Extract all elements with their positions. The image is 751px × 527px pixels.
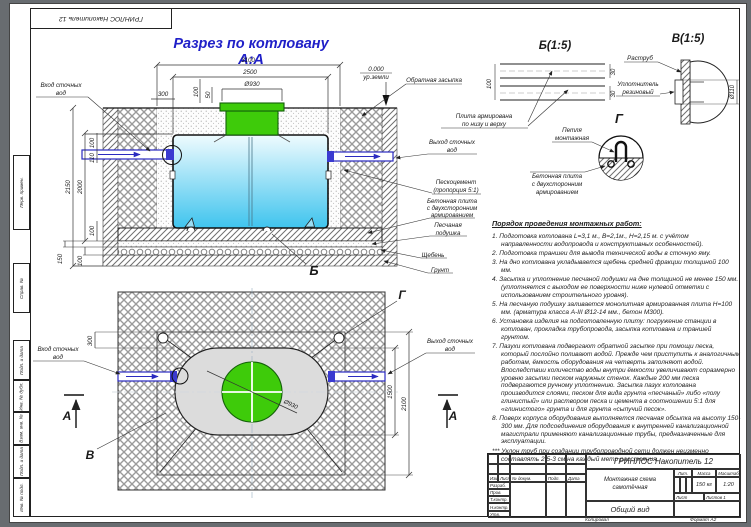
- dim-slab-h: 100: [89, 225, 96, 236]
- tb-cell: [510, 482, 546, 518]
- title-block: Изм. Лист № докум. Подп. Дата Разраб. Пр…: [487, 453, 740, 517]
- detail-b-label: Плита армирована: [456, 113, 513, 120]
- tb-cell: [566, 454, 586, 464]
- dim-cushion-h: 150: [57, 253, 64, 264]
- dim-depth-total: 2150: [65, 180, 72, 195]
- sand-cushion: [118, 241, 382, 247]
- detail-g-title: Г: [615, 111, 624, 126]
- cushion-label: Песчаная: [434, 222, 462, 229]
- concrete-slab: [118, 228, 382, 241]
- section-marker-b: Б: [309, 263, 318, 278]
- tb-cell: [498, 454, 510, 464]
- sand-right: [328, 135, 340, 228]
- dim-offset: 300: [158, 91, 169, 98]
- tb-row-nkontr: Н.контр.: [488, 503, 510, 511]
- tank-lid: [220, 103, 284, 111]
- detail-v-seal-label: Уплотнитель: [616, 81, 658, 88]
- detail-b-title: Б(1:5): [539, 40, 572, 52]
- tb-cell: [510, 454, 546, 464]
- tb-scheme-name: Монтажная схема самотёчная: [586, 469, 674, 501]
- detail-b: Б(1:5) 100 30 30 Плита армирована по низ…: [441, 40, 617, 128]
- dim-rubble-h: 100: [77, 255, 84, 266]
- tb-cell: [498, 464, 510, 474]
- backfill-label: Обратная засыпка: [406, 77, 462, 84]
- plan-dim-pit-width: 2100: [401, 397, 408, 412]
- plan-inlet-label: Вход сточных: [37, 346, 79, 353]
- format-label: Формат А2: [690, 518, 716, 523]
- instruction-item: 7. Пазухи котлована подвергают обратной …: [492, 343, 741, 413]
- montage-loop: [187, 227, 195, 231]
- sand-cement-label: (пропорция 5:1): [433, 187, 478, 194]
- tb-cell: [510, 464, 546, 474]
- tb-cell: [546, 454, 566, 464]
- tb-header-data: Дата: [566, 474, 586, 482]
- inlet-socket-block: [166, 149, 174, 160]
- slab-label: Бетонная плита: [427, 198, 478, 205]
- tb-header-docnum: № докум.: [510, 474, 546, 482]
- instruction-item: 2. Подготовка траншеи для вывода техниче…: [492, 250, 741, 258]
- cross-section-drawing: [82, 103, 397, 266]
- detail-v-bell: [690, 61, 729, 123]
- dim-inlet-dia: 110: [89, 153, 96, 163]
- tb-mass-value: 150 кг: [692, 477, 716, 493]
- detail-g-slab-label: с двухсторонним: [532, 181, 583, 188]
- slab-label: с двухсторонним: [427, 205, 478, 212]
- plan-outlet-label: вод: [445, 346, 456, 353]
- instruction-item: 6. Установка изделия на подготовленную п…: [492, 318, 741, 341]
- soil-band-left: [103, 108, 118, 266]
- backfill-left: [118, 108, 157, 228]
- plan-dim-offset: 300: [87, 335, 94, 346]
- screenshot-stage: ГРИНЛОС Накопитель 12 Перв. примен. Спра…: [0, 0, 751, 527]
- instruction-item: 1. Подготовка котлована L=3,1 м., В=2,1м…: [492, 233, 741, 249]
- detail-b-dim-100: 100: [487, 78, 493, 89]
- installation-instructions: Порядок проведения монтажных работ: 1. П…: [492, 219, 741, 465]
- plan-view-drawing: Ø930: [112, 288, 398, 498]
- detail-v-seal: [675, 80, 683, 104]
- dim-inlet-top: 100: [89, 137, 96, 148]
- instruction-item: 3. На дно котлована укладывается щебень …: [492, 259, 741, 275]
- plan-dim-tank-width: 1500: [387, 385, 394, 399]
- detail-b-dim-30-top: 30: [611, 68, 617, 75]
- detail-b-label: по низу и верху: [462, 121, 507, 128]
- outlet-label: вод: [447, 147, 458, 154]
- rubble-layer: [118, 247, 382, 255]
- detail-g-slab-label: Бетонная плита: [532, 173, 583, 180]
- tb-cell: [566, 464, 586, 474]
- instruction-item: 8. Поверх корпуса оборудования выполняет…: [492, 415, 741, 446]
- detail-g-slab-label: армированием: [536, 189, 579, 196]
- tb-row-utv: Утв.: [488, 511, 510, 518]
- montage-loop: [263, 227, 271, 231]
- tb-header-podp: Подп.: [546, 474, 566, 482]
- tb-cell: [546, 464, 566, 474]
- tb-cell: [546, 482, 566, 518]
- tb-lit-label: Лит.: [674, 469, 692, 477]
- plan-outlet-socket-block: [328, 371, 335, 382]
- plan-marker-a-left: А: [62, 409, 72, 423]
- plan-marker-g: Г: [398, 288, 406, 302]
- tank-body: [173, 135, 328, 228]
- zero-mark: 0.000: [368, 66, 384, 73]
- tb-cell: [488, 464, 498, 474]
- detail-v-title: В(1:5): [672, 33, 705, 45]
- tb-sheet-label: Лист: [674, 493, 704, 501]
- instruction-item: 5. На песчаную подушку заливается моноли…: [492, 301, 741, 317]
- plan-inlet-label: вод: [53, 354, 64, 361]
- tb-company-cell: [674, 501, 741, 518]
- dim-depth-tank: 2000: [77, 180, 84, 195]
- tb-sheets-label: Листов 1: [704, 493, 741, 501]
- outlet-socket-block: [327, 151, 334, 162]
- dim-neck-dia: Ø930: [243, 81, 260, 88]
- tank-neck: [226, 111, 278, 135]
- detail-v-socket-label: Раструб: [627, 55, 653, 62]
- instruction-item: 4. Засыпка и уплотнение песчаной подушки…: [492, 276, 741, 299]
- tb-cell: [488, 454, 498, 464]
- tb-scale-label: Масштаб: [716, 469, 741, 477]
- detail-v: В(1:5) Раструб Уплотнитель резиновый Ø11…: [616, 33, 740, 124]
- tb-header-izm: Изм.: [488, 474, 498, 482]
- ground-level-label: ур.земли: [362, 74, 389, 81]
- dim-pit-width: 3100: [241, 57, 255, 64]
- tb-mass-label: Масса: [692, 469, 716, 477]
- tb-row-razrab: Разраб.: [488, 482, 510, 489]
- tb-row-prov: Пров.: [488, 489, 510, 496]
- sand-cement-label: Пескоцемент: [436, 179, 476, 186]
- detail-v-seal-label: резиновый: [621, 89, 654, 96]
- tb-doc-title: ГРИНЛОС Накопитель 12: [586, 454, 741, 469]
- detail-g: Г Петля монтажная Бетонная плита с двухс…: [530, 111, 643, 196]
- plan-marker-a-right: А: [448, 409, 458, 423]
- inlet-label: вод: [56, 90, 67, 97]
- tb-view-label: Общий вид: [586, 501, 674, 518]
- dim-neck-h1: 100: [193, 86, 200, 97]
- tb-scale-value: 1:20: [716, 477, 741, 493]
- soil-bottom: [103, 255, 397, 266]
- dim-neck-h2: 50: [205, 91, 212, 98]
- tb-row-tkontr: Т.контр.: [488, 496, 510, 503]
- outlet-label: Выход сточных: [429, 139, 476, 146]
- tank-rib: [326, 171, 331, 179]
- detail-g-loop-label: Петля: [562, 127, 582, 134]
- tank-rib: [170, 171, 175, 179]
- plan-loop: [158, 333, 168, 343]
- detail-v-dim-dia: Ø110: [730, 84, 736, 100]
- dim-tank-width: 2500: [242, 69, 257, 76]
- plan-loop: [334, 333, 344, 343]
- plan-marker-v: В: [86, 448, 95, 462]
- detail-g-slab-hatch: [599, 158, 643, 180]
- inlet-label: Вход сточных: [40, 82, 82, 89]
- tb-header-list: Лист: [498, 474, 510, 482]
- plan-outlet-label: Выход сточных: [427, 338, 474, 345]
- copied-label: Копировал: [585, 518, 609, 523]
- backfill-right: [340, 108, 382, 228]
- tb-cell: [566, 482, 586, 518]
- detail-g-loop-label: монтажная: [555, 135, 590, 142]
- instructions-title: Порядок проведения монтажных работ:: [492, 219, 741, 228]
